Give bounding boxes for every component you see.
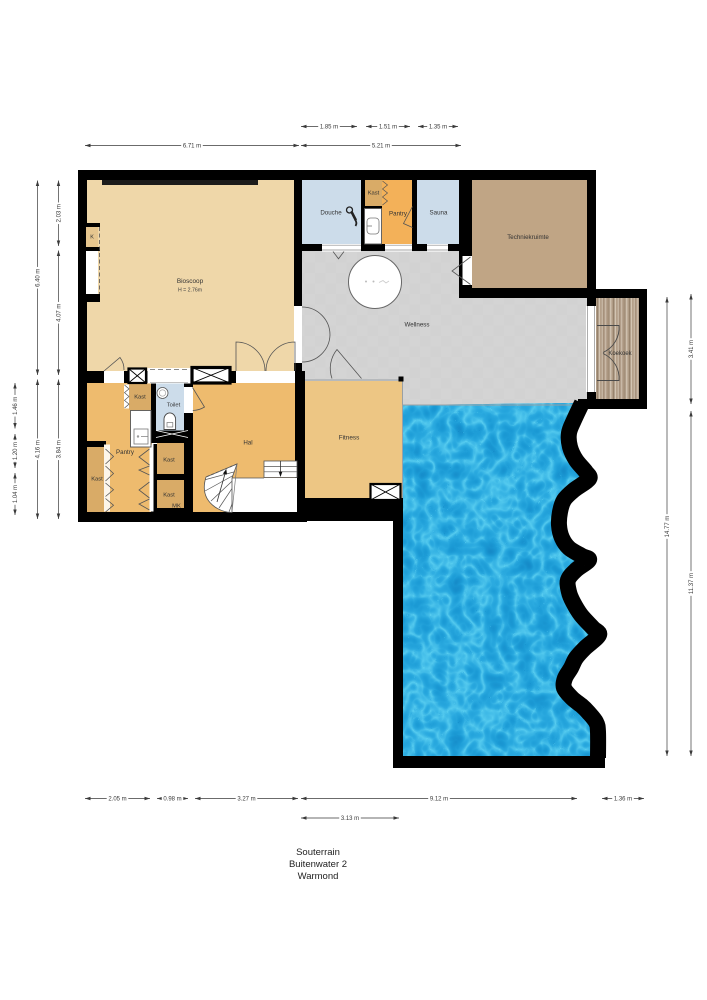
svg-text:Koekoek: Koekoek: [608, 351, 632, 357]
svg-text:Kast: Kast: [163, 458, 175, 464]
svg-text:1.20 m: 1.20 m: [13, 442, 19, 460]
svg-text:Kast: Kast: [163, 493, 175, 499]
svg-text:1.36 m: 1.36 m: [614, 797, 632, 803]
svg-text:Sauna: Sauna: [430, 210, 448, 217]
svg-text:Kast: Kast: [91, 477, 103, 483]
svg-text:Pantry: Pantry: [116, 449, 135, 456]
svg-text:3.27 m: 3.27 m: [237, 797, 255, 803]
svg-text:Buitenwater 2: Buitenwater 2: [289, 859, 347, 870]
svg-text:Wellness: Wellness: [405, 322, 430, 329]
svg-text:2.05 m: 2.05 m: [108, 797, 126, 803]
svg-text:5.21 m: 5.21 m: [372, 144, 390, 150]
svg-text:Hal: Hal: [243, 440, 252, 447]
svg-text:Fitness: Fitness: [339, 435, 360, 442]
svg-text:K: K: [90, 235, 94, 241]
svg-text:14.77 m: 14.77 m: [665, 516, 671, 538]
svg-text:Toilet: Toilet: [167, 403, 181, 409]
svg-text:11.37 m: 11.37 m: [689, 573, 695, 594]
svg-text:Warmond: Warmond: [298, 871, 339, 882]
svg-text:3.41 m: 3.41 m: [689, 340, 695, 358]
svg-text:Kast: Kast: [134, 395, 146, 401]
svg-text:3.84 m: 3.84 m: [57, 440, 63, 458]
svg-text:Souterrain: Souterrain: [296, 847, 340, 858]
svg-text:Techniekruimte: Techniekruimte: [507, 234, 549, 241]
svg-text:6.40 m: 6.40 m: [36, 269, 42, 287]
svg-text:MK: MK: [172, 504, 181, 510]
svg-text:Kast: Kast: [368, 191, 380, 197]
svg-text:2.03 m: 2.03 m: [57, 204, 63, 222]
svg-text:H = 2.76m: H = 2.76m: [178, 288, 202, 294]
svg-text:1.46 m: 1.46 m: [13, 397, 19, 415]
svg-text:1.04 m: 1.04 m: [13, 485, 19, 503]
svg-text:1.85 m: 1.85 m: [320, 125, 338, 131]
svg-text:Pantry: Pantry: [389, 211, 408, 218]
svg-text:9.12 m: 9.12 m: [430, 797, 448, 803]
svg-text:0.98 m: 0.98 m: [163, 797, 181, 803]
svg-text:Bioscoop: Bioscoop: [177, 278, 204, 285]
svg-text:3.13 m: 3.13 m: [341, 816, 359, 822]
svg-text:1.51 m: 1.51 m: [379, 125, 397, 131]
svg-text:4.16 m: 4.16 m: [36, 440, 42, 458]
svg-text:4.07 m: 4.07 m: [57, 304, 63, 322]
svg-text:6.71 m: 6.71 m: [183, 144, 201, 150]
svg-text:1.35 m: 1.35 m: [429, 125, 447, 131]
svg-text:Douche: Douche: [320, 210, 342, 217]
